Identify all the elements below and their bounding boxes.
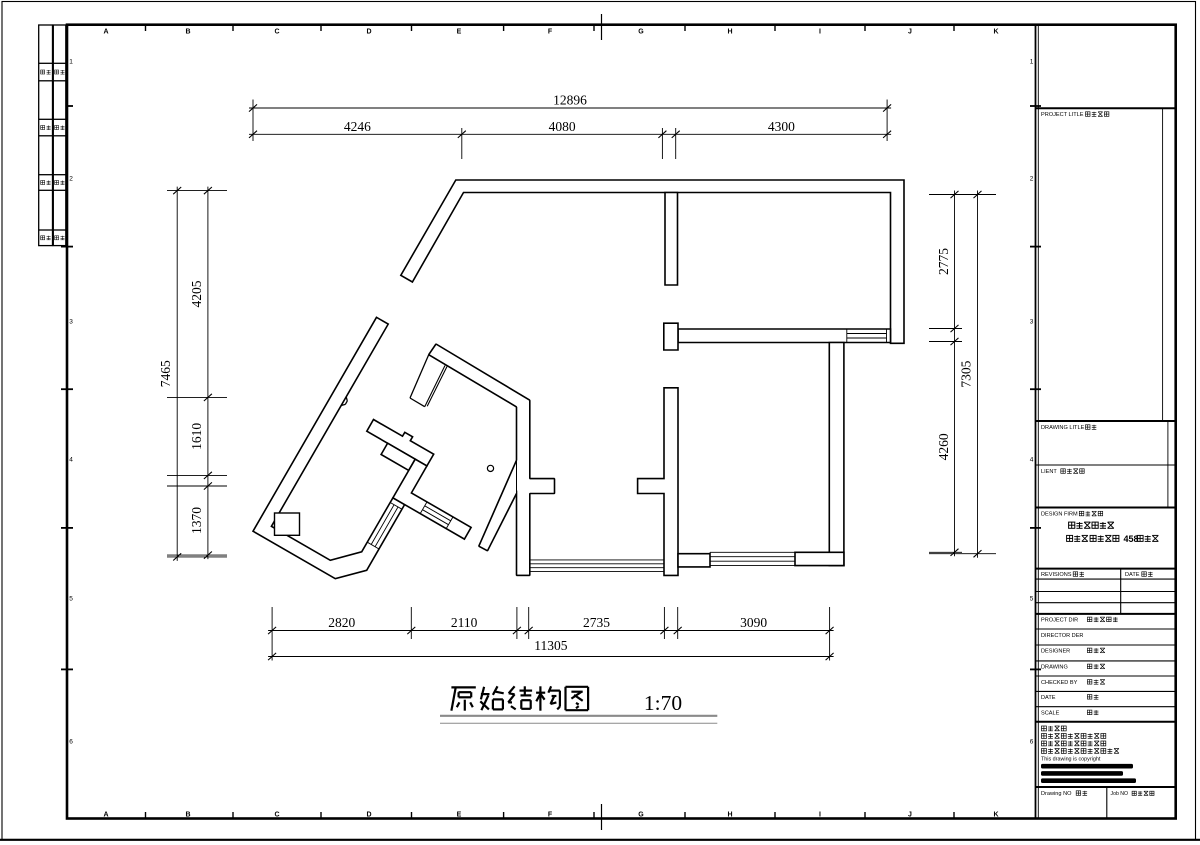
svg-text:4260: 4260 bbox=[936, 433, 951, 460]
svg-text:LIENT: LIENT bbox=[1041, 469, 1057, 475]
svg-text:2: 2 bbox=[1030, 176, 1034, 183]
svg-text:2: 2 bbox=[69, 176, 73, 183]
svg-text:I: I bbox=[819, 812, 821, 819]
svg-text:2820: 2820 bbox=[328, 615, 355, 630]
svg-text:E: E bbox=[457, 812, 462, 819]
svg-text:2110: 2110 bbox=[451, 615, 478, 630]
svg-text:DATE: DATE bbox=[1041, 695, 1056, 701]
svg-text:D: D bbox=[366, 812, 371, 819]
svg-text:F: F bbox=[548, 29, 553, 36]
svg-text:5: 5 bbox=[69, 596, 73, 603]
svg-text:12896: 12896 bbox=[553, 93, 587, 108]
svg-text:I: I bbox=[819, 29, 821, 36]
svg-text:Drawing NO: Drawing NO bbox=[1041, 791, 1072, 797]
svg-text:6: 6 bbox=[1030, 739, 1034, 746]
svg-text:6: 6 bbox=[69, 739, 73, 746]
svg-text:7465: 7465 bbox=[158, 360, 173, 387]
svg-text:PROJECT DIR: PROJECT DIR bbox=[1041, 618, 1078, 624]
svg-text:REVISIONS: REVISIONS bbox=[1041, 572, 1072, 578]
svg-text:Job NO: Job NO bbox=[1111, 791, 1129, 797]
svg-text:11305: 11305 bbox=[534, 638, 567, 653]
svg-text:4205: 4205 bbox=[189, 280, 204, 307]
svg-text:5: 5 bbox=[1030, 596, 1034, 603]
svg-text:3: 3 bbox=[69, 319, 73, 326]
svg-text:B: B bbox=[185, 812, 190, 819]
svg-text:3090: 3090 bbox=[740, 615, 767, 630]
svg-text:DESIGNER: DESIGNER bbox=[1041, 649, 1070, 655]
svg-text:H: H bbox=[727, 812, 732, 819]
svg-text:G: G bbox=[638, 812, 644, 819]
svg-text:DIRECTOR DER: DIRECTOR DER bbox=[1041, 633, 1083, 639]
svg-text:4300: 4300 bbox=[768, 119, 795, 134]
svg-text:7305: 7305 bbox=[959, 360, 974, 387]
svg-text:1: 1 bbox=[1030, 59, 1034, 66]
svg-text:B: B bbox=[185, 29, 190, 36]
svg-text:DESIGN FIRM: DESIGN FIRM bbox=[1041, 512, 1078, 518]
svg-text:J: J bbox=[908, 29, 912, 36]
svg-text:J: J bbox=[908, 812, 912, 819]
svg-text:SCALE: SCALE bbox=[1041, 711, 1060, 717]
svg-text:K: K bbox=[993, 29, 998, 36]
svg-text:F: F bbox=[548, 812, 553, 819]
svg-text:458: 458 bbox=[1124, 534, 1139, 544]
svg-text:H: H bbox=[727, 29, 732, 36]
svg-text:DATE: DATE bbox=[1125, 572, 1140, 578]
svg-text:1370: 1370 bbox=[189, 507, 204, 534]
svg-text:E: E bbox=[457, 29, 462, 36]
svg-text:G: G bbox=[638, 29, 644, 36]
svg-text:This drawing is copyright: This drawing is copyright bbox=[1041, 757, 1101, 763]
svg-text:1610: 1610 bbox=[189, 423, 204, 450]
svg-text:1: 1 bbox=[69, 59, 73, 66]
svg-text:C: C bbox=[274, 29, 279, 36]
svg-text:4: 4 bbox=[1030, 457, 1034, 464]
svg-text:2735: 2735 bbox=[583, 615, 610, 630]
svg-text:DRAWING: DRAWING bbox=[1041, 665, 1068, 671]
svg-text:D: D bbox=[366, 29, 371, 36]
svg-text:A: A bbox=[103, 29, 108, 36]
svg-text:4246: 4246 bbox=[344, 119, 371, 134]
svg-text:DRAWING LITLE: DRAWING LITLE bbox=[1041, 425, 1085, 431]
svg-text:2775: 2775 bbox=[936, 248, 951, 275]
svg-text:4: 4 bbox=[69, 457, 73, 464]
svg-text:A: A bbox=[103, 812, 108, 819]
svg-text:CHECKED BY: CHECKED BY bbox=[1041, 680, 1078, 686]
svg-text:C: C bbox=[274, 812, 279, 819]
svg-text:K: K bbox=[993, 812, 998, 819]
svg-text:4080: 4080 bbox=[549, 119, 576, 134]
svg-text:3: 3 bbox=[1030, 319, 1034, 326]
svg-text:PROJECT LITLE: PROJECT LITLE bbox=[1041, 112, 1084, 118]
svg-text:1:70: 1:70 bbox=[644, 691, 682, 715]
